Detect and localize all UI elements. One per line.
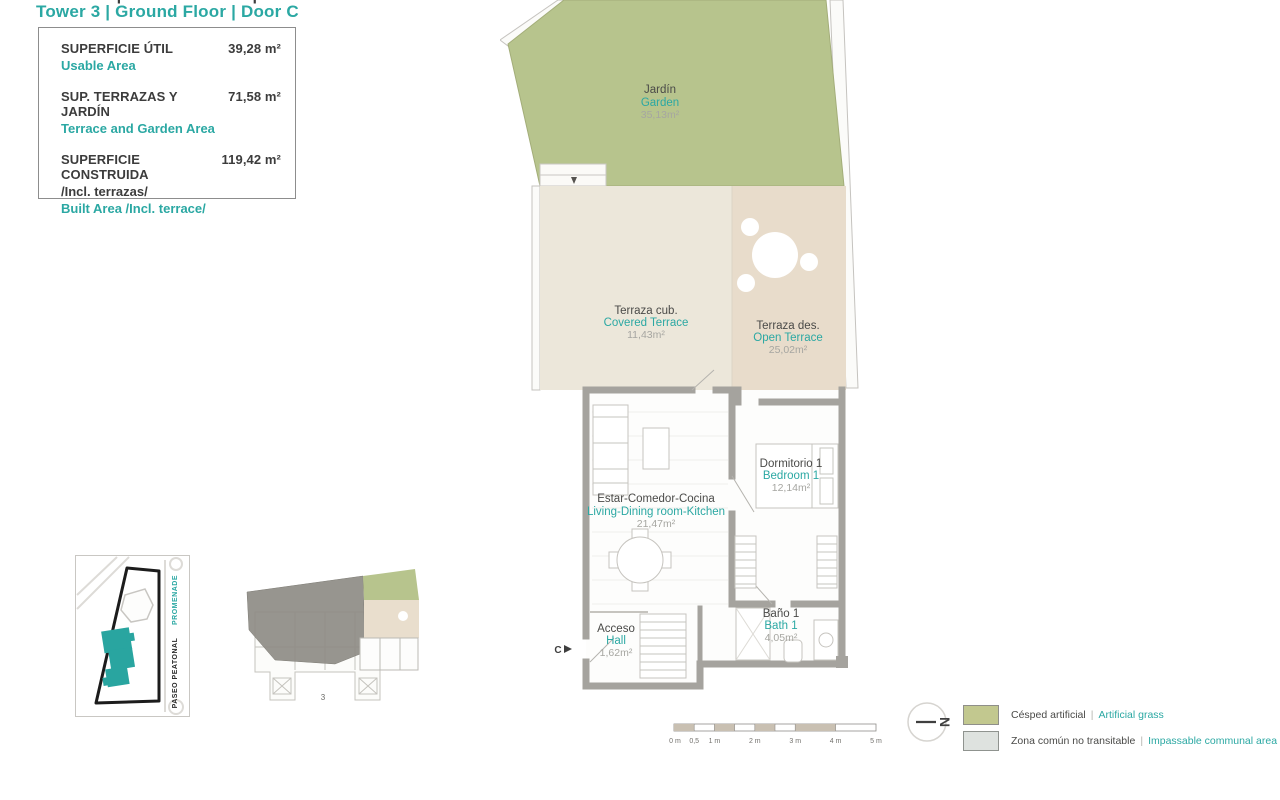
- surface-info-box: SUPERFICIE ÚTIL 39,28 m² Usable Area SUP…: [38, 27, 296, 199]
- building-key-plan: 3: [235, 552, 425, 717]
- page-title-english: Tower 3 | Ground Floor | Door C: [36, 2, 299, 22]
- scale-3m: 3 m: [789, 738, 801, 745]
- grass-swatch: [963, 705, 999, 725]
- legend-row-grass: Césped artificial | Artificial grass: [963, 704, 1277, 725]
- hall-label-en: Hall: [606, 635, 626, 647]
- keyplan-unit-rooms: [360, 638, 418, 670]
- covered-terrace-area: [540, 186, 732, 390]
- covered-terrace-label-en: Covered Terrace: [604, 317, 689, 329]
- legend-separator: |: [1140, 735, 1143, 747]
- built-area-note: /Incl. terrazas/: [61, 184, 281, 199]
- built-area-label-en: Built Area /Incl. terrace/: [61, 201, 281, 216]
- terrace-garden-label-en: Terrace and Garden Area: [61, 121, 281, 136]
- keyplan-number: 3: [321, 693, 326, 702]
- main-floor-plan: Jardín Garden 35,13m² Terraza cub. Cover…: [500, 0, 880, 700]
- north-arrow: N: [903, 700, 963, 746]
- bedroom-label-en: Bedroom 1: [763, 470, 819, 482]
- coffee-table: [643, 428, 669, 469]
- garden-label-es: Jardín: [644, 84, 676, 96]
- usable-area-row: SUPERFICIE ÚTIL 39,28 m² Usable Area: [61, 41, 281, 73]
- covered-terrace-area-value: 11,43m²: [627, 329, 665, 341]
- north-letter: N: [937, 717, 953, 727]
- usable-area-value: 39,28 m²: [222, 41, 281, 56]
- legend: Césped artificial | Artificial grass Zon…: [963, 704, 1277, 756]
- usable-area-label-en: Usable Area: [61, 58, 281, 73]
- keyplan-garden: [363, 569, 419, 600]
- living-label-en: Living-Dining room-Kitchen: [587, 506, 725, 518]
- garden-label-en: Garden: [641, 97, 679, 109]
- promenade-label: PROMENADE: [172, 575, 179, 625]
- sofa: [593, 405, 628, 495]
- scale-1m: 1 m: [709, 738, 721, 745]
- garden-step: [540, 164, 606, 186]
- paseo-peatonal-label: PASEO PEATONAL: [172, 637, 179, 708]
- built-area-row: SUPERFICIE CONSTRUIDA 119,42 m² /Incl. t…: [61, 152, 281, 216]
- entrance-marker: C: [554, 645, 572, 656]
- communal-band-left: [532, 186, 540, 390]
- scale-bar-labels: 0 m 0,5 1 m 2 m 3 m 4 m 5 m: [669, 738, 882, 745]
- bedroom-area-value: 12,14m²: [772, 482, 811, 494]
- garden-area: [508, 0, 844, 186]
- scale-05m: 0,5: [689, 738, 699, 745]
- terrace-garden-value: 71,58 m²: [222, 89, 281, 104]
- living-label-es: Estar-Comedor-Cocina: [597, 493, 715, 505]
- garden-area-value: 35,13m²: [641, 109, 680, 121]
- floorplan-page: TORRE 3 | PLANTA BAJA | PUERTA C Tower 3…: [0, 0, 1280, 800]
- keyplan-terrace-table: [398, 611, 408, 621]
- terrace-garden-label: SUP. TERRAZAS Y JARDÍN: [61, 89, 222, 119]
- communal-swatch: [963, 731, 999, 751]
- bath-label-es: Baño 1: [763, 608, 799, 620]
- legend-separator: |: [1091, 709, 1094, 721]
- entrance-arrow-icon: [564, 645, 572, 653]
- corner-pillar: [836, 656, 848, 668]
- open-terrace-area-value: 25,02m²: [769, 344, 808, 356]
- built-area-label: SUPERFICIE CONSTRUIDA: [61, 152, 216, 182]
- terrace-garden-area-row: SUP. TERRAZAS Y JARDÍN 71,58 m² Terrace …: [61, 89, 281, 136]
- open-terrace-label-en: Open Terrace: [753, 332, 822, 344]
- usable-area-label: SUPERFICIE ÚTIL: [61, 41, 173, 56]
- bath-label-en: Bath 1: [764, 620, 797, 632]
- door-letter: C: [554, 645, 561, 656]
- scale-0m: 0 m: [669, 738, 681, 745]
- scale-4m: 4 m: [830, 738, 842, 745]
- scale-5m: 5 m: [870, 738, 882, 745]
- open-terrace-label-es: Terraza des.: [756, 320, 819, 332]
- scale-2m: 2 m: [749, 738, 761, 745]
- built-area-value: 119,42 m²: [216, 152, 281, 167]
- communal-label-en: Impassable communal area: [1148, 735, 1277, 747]
- hall-area-value: 1,62m²: [600, 647, 633, 659]
- covered-terrace-label-es: Terraza cub.: [614, 305, 677, 317]
- keyplan-terrace: [364, 600, 419, 638]
- bedroom-label-es: Dormitorio 1: [760, 458, 823, 470]
- living-area-value: 21,47m²: [637, 518, 676, 530]
- legend-row-communal: Zona común no transitable | Impassable c…: [963, 730, 1277, 751]
- stairs: [640, 614, 686, 678]
- site-location-map: PROMENADE PASEO PEATONAL: [75, 555, 190, 717]
- bath-area-value: 4,05m²: [765, 632, 798, 644]
- hall-label-es: Acceso: [597, 623, 635, 635]
- scale-bar: 0 m 0,5 1 m 2 m 3 m 4 m 5 m: [668, 716, 883, 750]
- communal-label-es: Zona común no transitable: [1011, 735, 1135, 747]
- grass-label-en: Artificial grass: [1098, 709, 1163, 721]
- grass-label-es: Césped artificial: [1011, 709, 1086, 721]
